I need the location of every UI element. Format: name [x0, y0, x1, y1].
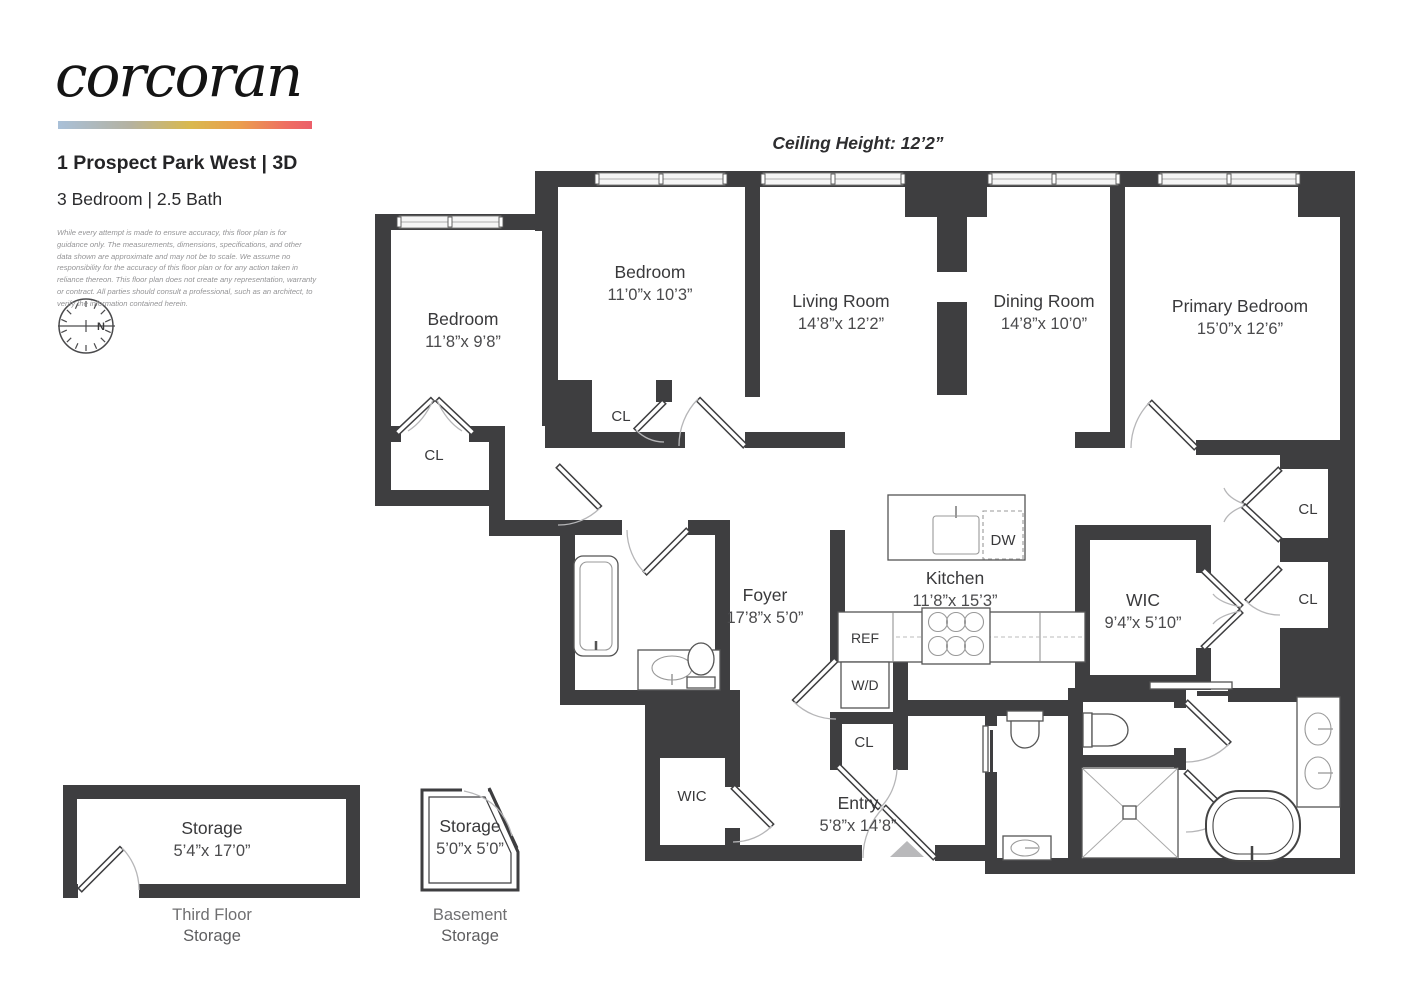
kitchen-island	[888, 495, 1025, 560]
dishwasher-label: DW	[991, 532, 1017, 549]
room-dims-kitchen: 11’8”x 15’3”	[913, 592, 998, 610]
bathtub	[574, 556, 618, 656]
storage1-floor: Third Floor	[172, 906, 252, 924]
room-dims-bedroom-2: 11’0”x 10’3”	[608, 286, 693, 304]
window	[761, 173, 905, 185]
toilet	[1007, 711, 1043, 748]
room-label-primary-bedroom: Primary Bedroom	[1172, 296, 1308, 316]
window	[595, 173, 727, 185]
room-dims-wic: 9’4”x 5’10”	[1104, 614, 1181, 632]
compass-north-label: N	[97, 321, 105, 333]
room-label-bedroom-1: Bedroom	[427, 309, 498, 329]
window	[988, 173, 1120, 185]
ceiling-height-label: Ceiling Height: 12’2”	[772, 133, 943, 153]
room-label-bedroom-2: Bedroom	[614, 262, 685, 282]
storage2-type: Storage	[441, 927, 499, 945]
storage2-dims: 5’0”x 5’0”	[436, 840, 504, 858]
unit-info: 3 Bedroom | 2.5 Bath	[57, 189, 222, 210]
toilet	[1083, 713, 1128, 747]
sink	[1003, 836, 1051, 860]
pocket-door	[983, 726, 993, 774]
room-label-kitchen: Kitchen	[926, 568, 984, 588]
room-label-entry: Entry	[838, 793, 879, 813]
room-dims-bedroom-1: 11’8”x 9’8”	[425, 333, 501, 351]
listing-address: 1 Prospect Park West | 3D	[57, 152, 297, 175]
closet-label: CL	[611, 408, 630, 425]
shower	[1082, 768, 1178, 858]
walls	[375, 171, 1355, 874]
corcoran-logo: corcoran	[55, 42, 301, 110]
room-dims-primary-bedroom: 15’0”x 12’6”	[1197, 320, 1283, 338]
room-label-foyer: Foyer	[743, 585, 788, 605]
room-dims-dining-room: 14’8”x 10’0”	[1001, 315, 1087, 333]
window	[1158, 173, 1300, 185]
floorplan-page: corcoran 1 Prospect Park West | 3D 3 Bed…	[0, 0, 1412, 1000]
closet-label: CL	[424, 447, 443, 464]
room-dims-entry: 5’8”x 14’8”	[819, 817, 896, 835]
storage1-label: Storage	[181, 818, 242, 838]
window	[397, 216, 503, 228]
room-label-living-room: Living Room	[792, 291, 889, 311]
closet-label: CL	[1298, 591, 1317, 608]
storage-unit-basement	[422, 785, 518, 890]
brand-gradient-bar	[58, 121, 312, 129]
closet-label: CL	[854, 734, 873, 751]
washer-dryer-label: W/D	[851, 677, 878, 693]
refrigerator-label: REF	[851, 630, 879, 646]
room-dims-foyer: 17’8”x 5’0”	[726, 609, 803, 627]
stove	[922, 608, 990, 664]
fixtures	[574, 495, 1340, 861]
room-dims-living-room: 14’8”x 12’2”	[798, 315, 884, 333]
storage1-type: Storage	[183, 927, 241, 945]
toilet	[687, 643, 715, 688]
bathtub	[1206, 791, 1300, 861]
room-label-wic: WIC	[1126, 590, 1160, 610]
closet-label: CL	[1298, 501, 1317, 518]
wic-small-label: WIC	[677, 788, 706, 805]
disclaimer-text: While every attempt is made to ensure ac…	[57, 227, 317, 309]
room-label-dining-room: Dining Room	[993, 291, 1094, 311]
storage2-floor: Basement	[433, 906, 508, 924]
floorplan-drawing: N Ceiling Height: 12’2” Bedroom 11’8”x 9…	[0, 0, 1412, 1000]
storage2-label: Storage	[439, 816, 500, 836]
double-vanity	[1297, 697, 1340, 807]
storage1-dims: 5’4”x 17’0”	[173, 842, 250, 860]
